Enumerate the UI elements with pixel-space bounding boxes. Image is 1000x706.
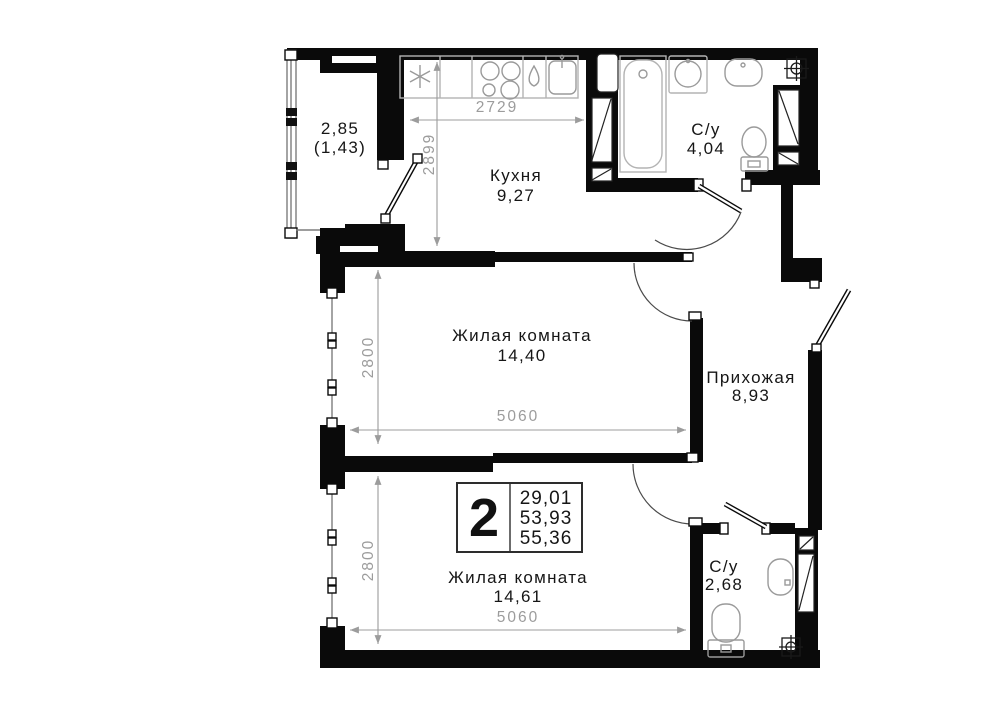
floor-plan-canvas: 2729 2899 2800 5060 2800 5060 2,85 (1,43… [0,0,1000,706]
dim-living2-width: 5060 [497,609,539,626]
dim-kitchen-depth: 2899 [421,133,438,175]
bathroom-top-name-label: С/у [691,120,720,139]
badge-area-1: 29,01 [520,488,573,509]
hallway-area-label: 8,93 [732,386,770,405]
wall-hallway-mid [690,318,703,462]
apartment-info-badge: 2 29,01 53,93 55,36 [457,483,582,552]
washing-machine [669,56,707,93]
wall-hallway-right-lower [808,350,822,530]
bathroom-bottom-area-label: 2,68 [705,575,743,594]
balcony-door [378,154,422,223]
wall-living2-top-thin [493,453,692,463]
badge-rooms-count: 2 [469,488,499,548]
living1-area-label: 14,40 [497,346,546,365]
wall-hallway-right-upper [781,184,793,262]
kitchen-name-label: Кухня [490,166,542,185]
badge-area-3: 55,36 [520,528,573,549]
dim-living2-depth: 2800 [360,539,377,581]
lintel-slot-balcony-top [332,56,376,63]
badge-area-2: 53,93 [520,508,573,529]
niche-bathtub-head [597,54,618,92]
living2-area-label: 14,61 [493,587,542,606]
fridge-snowflake-icon [410,65,430,88]
kitchen-fixtures [400,55,578,99]
dim-living1-width: 5060 [497,408,539,425]
wall-living2-top-thick [345,456,493,472]
bathroom-bottom-door [720,504,770,534]
balcony-reduced-area-label: (1,43) [314,138,366,157]
washbasin-bottom [768,559,793,595]
dim-living1-depth: 2800 [360,336,377,378]
wall-left-pier-3 [320,626,345,658]
lintel-slot-living1-corner [340,246,378,252]
wall-living1-top-thick [345,251,495,267]
kitchen-sink [549,55,576,94]
living2-door [633,453,702,526]
toilet-bottom [708,604,744,657]
balcony-area-label: 2,85 [321,119,359,138]
living1-door [634,253,701,321]
vent-cross-icon-bottom [779,635,803,659]
wall-bottom [320,650,820,668]
bathroom-bottom-name-label: С/у [709,557,738,576]
water-drop-icon [529,66,539,86]
wall-living1-top-thin [495,252,692,262]
floor-plan-drawing: 2729 2899 2800 5060 2800 5060 2,85 (1,43… [0,0,1000,706]
hallway-name-label: Прихожая [706,368,795,387]
wall-entry-jamb [781,258,822,282]
window-living1 [327,288,337,428]
dim-kitchen-width: 2729 [476,99,518,116]
wall-left-pier-2 [320,425,345,489]
window-living2 [327,484,337,628]
living2-name-label: Жилая комната [448,568,588,587]
bathtub [620,56,666,172]
wall-bathroom-top-bottom-right [745,170,820,185]
entrance-door [810,280,849,352]
living1-name-label: Жилая комната [452,326,592,345]
washbasin-top [725,59,762,86]
doors [378,154,849,534]
hob-icon [481,62,520,99]
wall-bathroom-bottom-left [690,523,703,657]
toilet-top [741,127,768,171]
kitchen-area-label: 9,27 [497,186,535,205]
shaft-kitchen-wall-large [592,98,612,162]
bathroom-top-area-label: 4,04 [687,139,725,158]
